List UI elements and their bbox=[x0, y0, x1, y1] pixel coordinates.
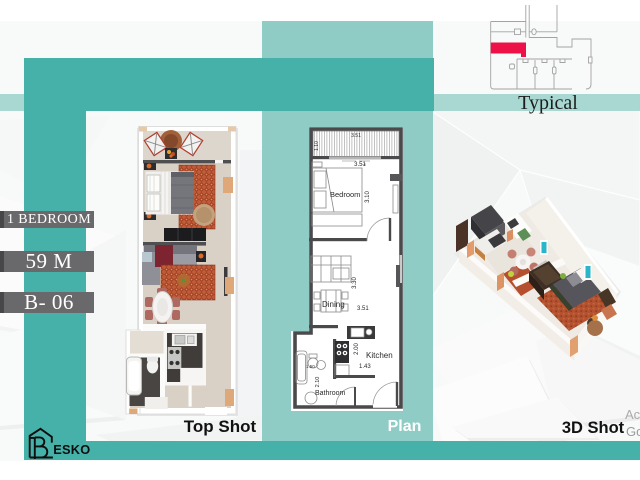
svg-text:3.51: 3.51 bbox=[357, 306, 369, 312]
svg-text:Bedroom: Bedroom bbox=[330, 190, 360, 199]
svg-text:Kitchen: Kitchen bbox=[366, 351, 393, 360]
svg-text:Dining: Dining bbox=[322, 300, 345, 309]
svg-text:ESKO: ESKO bbox=[53, 442, 90, 457]
svg-text:1.43: 1.43 bbox=[359, 364, 371, 370]
svg-text:2.10: 2.10 bbox=[315, 377, 321, 388]
svg-text:Bathroom: Bathroom bbox=[315, 390, 346, 397]
svg-text:1.50: 1.50 bbox=[306, 364, 315, 369]
svg-text:2.00: 2.00 bbox=[354, 343, 360, 355]
svg-text:3.10: 3.10 bbox=[365, 191, 371, 203]
svg-text:3.30: 3.30 bbox=[352, 277, 358, 289]
svg-text:3.51: 3.51 bbox=[351, 133, 361, 139]
svg-text:1.10: 1.10 bbox=[314, 141, 320, 151]
svg-text:→: → bbox=[361, 161, 367, 167]
